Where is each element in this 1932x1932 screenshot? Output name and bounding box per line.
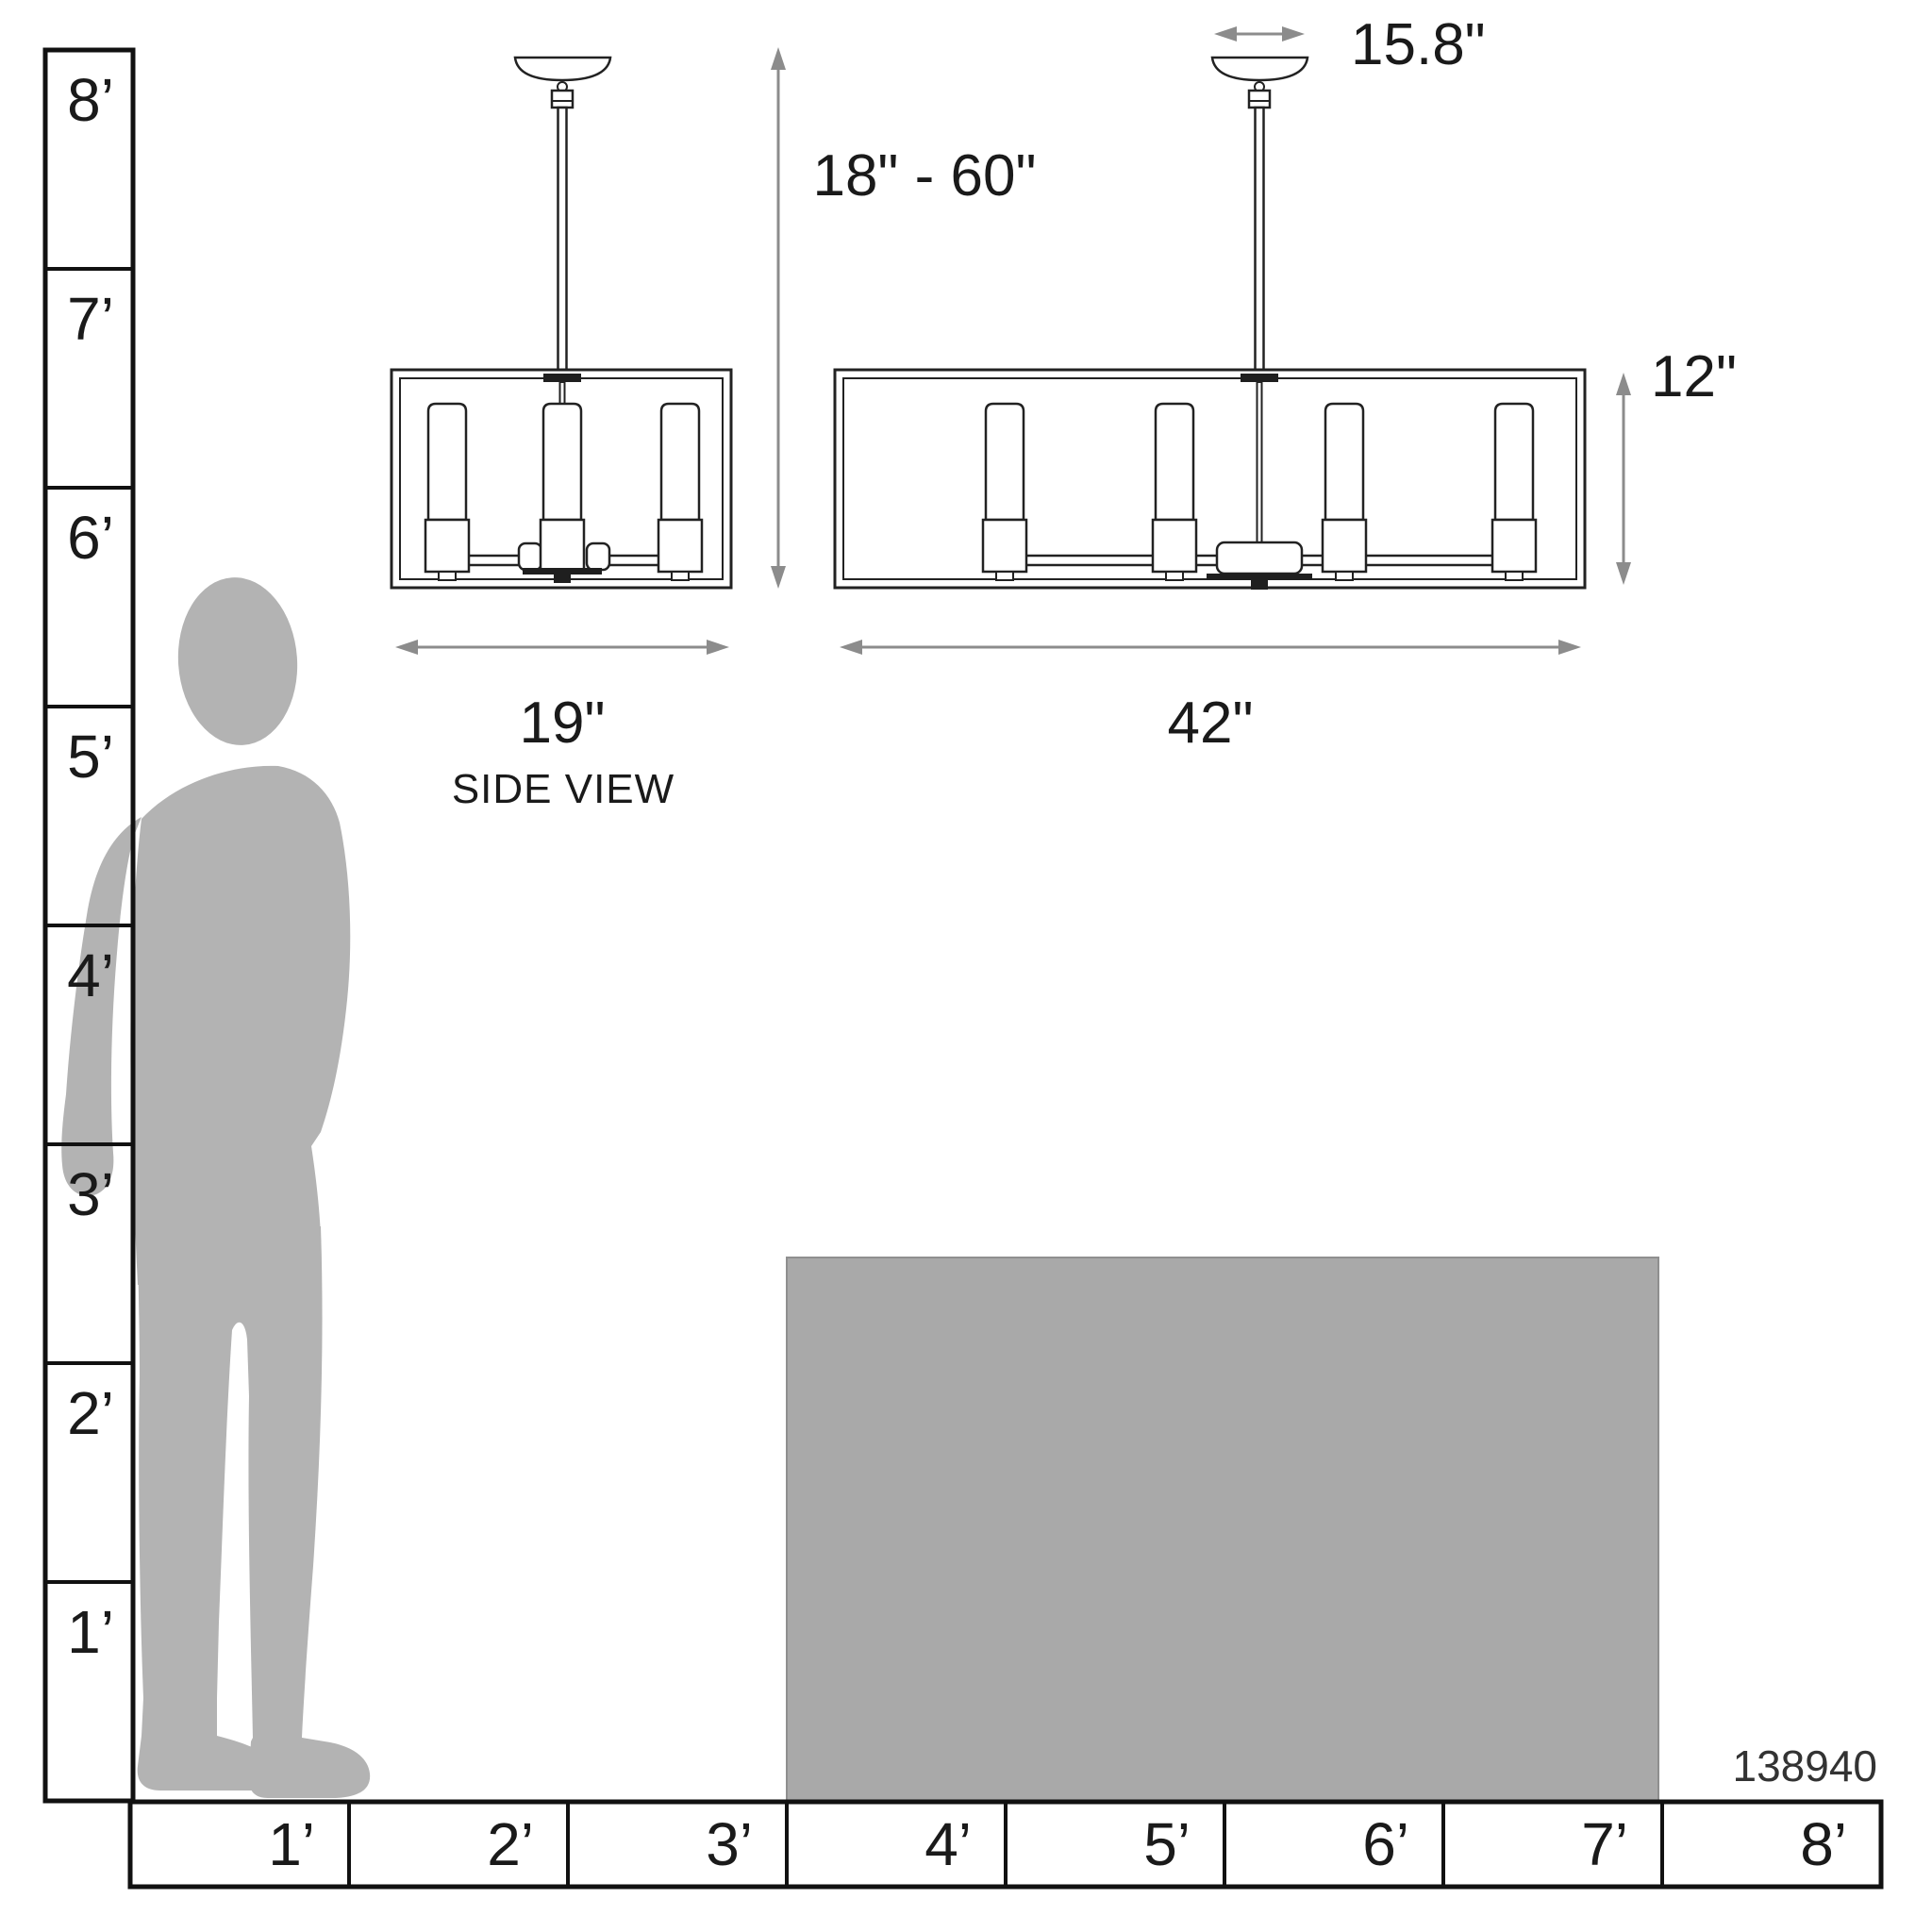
side-width-label: 19" [520,691,606,756]
side-view-candle [658,404,702,580]
side-view-drawing [391,58,731,588]
vertical-ruler-label: 6’ [67,504,114,572]
vertical-ruler-label: 2’ [67,1379,114,1447]
vertical-ruler-label: 7’ [67,285,114,353]
horizontal-ruler-label: 6’ [1362,1810,1409,1878]
vertical-ruler-label: 8’ [67,66,114,134]
product-code-label: 138940 [1733,1741,1878,1790]
suspension-height-label: 18" - 60" [812,143,1036,208]
side-width-arrow [395,640,729,655]
horizontal-ruler-label: 3’ [706,1810,753,1878]
person-legs [138,1226,370,1798]
fixture-width-label: 42" [1168,691,1254,756]
vertical-ruler-label: 1’ [67,1598,114,1666]
horizontal-ruler-label: 2’ [487,1810,534,1878]
shade-height-arrow [1616,373,1631,585]
side-view-rod [558,108,567,370]
front-view-center-hub [1207,542,1312,590]
horizontal-ruler-label: 5’ [1143,1810,1191,1878]
horizontal-ruler-label: 4’ [924,1810,972,1878]
person-torso [130,766,350,1285]
front-view-candle [1492,404,1536,580]
front-view-candle [983,404,1026,580]
suspension-height-arrow [771,47,786,589]
horizontal-ruler-label: 7’ [1581,1810,1628,1878]
dimension-diagram: 8’ 7’ 6’ 5’ 4’ 3’ 2’ 1’ 1’ 2’ 3’ 4’ 5’ 6… [0,0,1932,1932]
front-view-canopy-icon [1212,58,1307,108]
side-view-candle [425,404,469,580]
canopy-width-arrow [1214,26,1305,42]
canopy-width-label: 15.8" [1351,12,1486,77]
table-block [787,1257,1658,1802]
vertical-ruler-label: 4’ [67,941,114,1009]
fixture-width-arrow [840,640,1581,655]
vertical-ruler-label: 3’ [67,1160,114,1228]
front-view-candle [1153,404,1196,580]
front-view-rod [1256,108,1264,370]
side-view-caption: SIDE VIEW [452,766,675,812]
horizontal-ruler-label: 8’ [1800,1810,1847,1878]
vertical-ruler-label: 5’ [67,723,114,791]
front-view-candle [1323,404,1366,580]
side-view-canopy-icon [515,58,610,108]
front-view-drawing [835,58,1585,590]
person-head [173,574,303,749]
shade-height-label: 12" [1651,344,1737,409]
horizontal-ruler-label: 1’ [268,1810,315,1878]
diagram-canvas: 8’ 7’ 6’ 5’ 4’ 3’ 2’ 1’ 1’ 2’ 3’ 4’ 5’ 6… [0,0,1932,1932]
